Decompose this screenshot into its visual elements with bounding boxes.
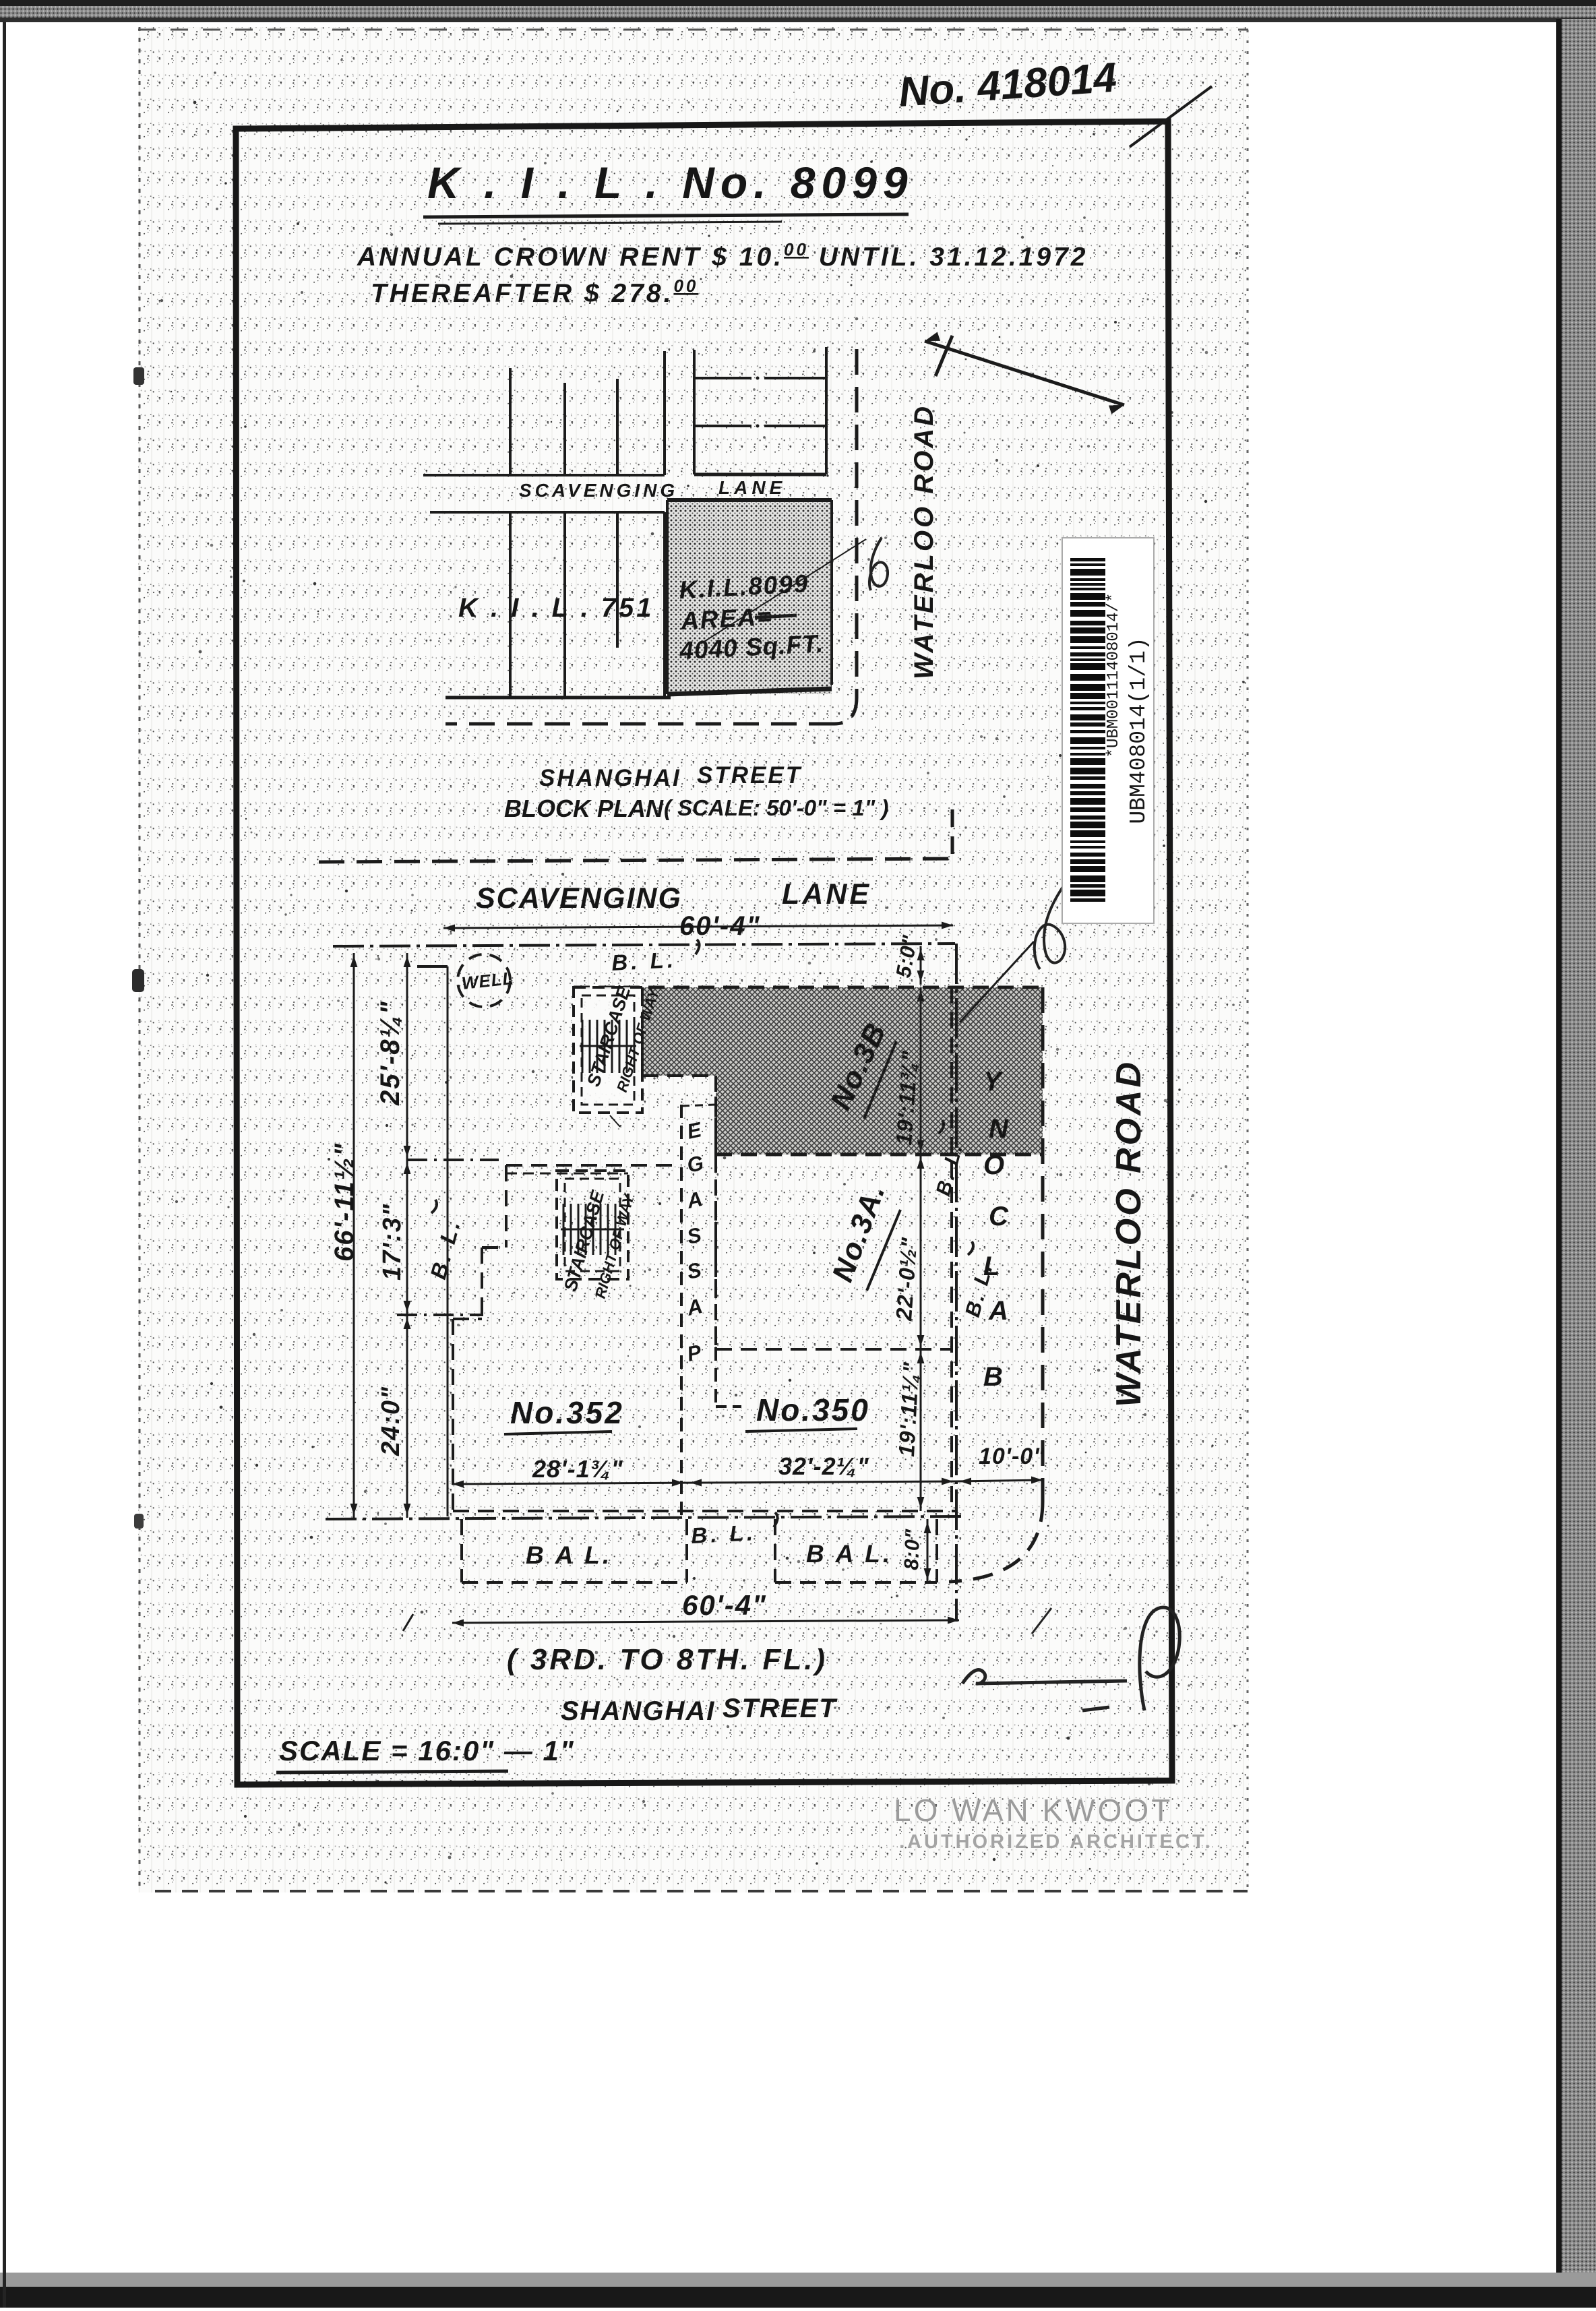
svg-text:UBM408014(1/1): UBM408014(1/1) (1126, 637, 1151, 824)
svg-text:C: C (989, 1202, 1009, 1231)
svg-text:STREET: STREET (697, 762, 802, 789)
svg-text:WATERLOO ROAD: WATERLOO ROAD (1109, 1059, 1148, 1407)
svg-text:O: O (983, 1150, 1004, 1180)
svg-text:WATERLOO ROAD: WATERLOO ROAD (909, 404, 939, 679)
svg-text:K . I . L . No. 8099: K . I . L . No. 8099 (427, 158, 914, 208)
svg-text:No.350: No.350 (756, 1392, 870, 1427)
svg-text:60'-4": 60'-4" (679, 911, 761, 941)
svg-text:ANNUAL CROWN RENT $ 10.00 UNTI: ANNUAL CROWN RENT $ 10.00 UNTIL. 31.12.1… (357, 239, 1088, 272)
svg-text:B. L.: B. L. (690, 1520, 756, 1548)
svg-text:*UBM00111408014/*: *UBM00111408014/* (1105, 593, 1123, 758)
svg-text:( 3RD. TO 8TH. FL.): ( 3RD. TO 8TH. FL.) (507, 1643, 828, 1676)
svg-text:B: B (983, 1362, 1003, 1392)
svg-text:SCALE = 16:0" — 1": SCALE = 16:0" — 1" (279, 1735, 575, 1766)
svg-text:B A L.: B A L. (526, 1541, 612, 1569)
svg-text:60'-4": 60'-4" (682, 1589, 767, 1621)
svg-text:SHANGHAI: SHANGHAI (561, 1696, 715, 1726)
svg-text:24:0": 24:0" (377, 1386, 405, 1456)
svg-text:SCAVENGING: SCAVENGING (476, 882, 682, 915)
svg-text:Y: Y (983, 1067, 1004, 1097)
svg-text:K . I . L . 751: K . I . L . 751 (458, 593, 654, 623)
svg-text:LANE: LANE (718, 477, 786, 498)
svg-text:19':11¼": 19':11¼" (894, 1361, 923, 1458)
svg-text:THEREAFTER $ 278.00: THEREAFTER $ 278.00 (371, 276, 698, 308)
svg-text:A: A (988, 1296, 1008, 1326)
svg-text:8:0": 8:0" (900, 1529, 924, 1571)
svg-text:28'-1¾": 28'-1¾" (532, 1455, 623, 1483)
svg-text:LANE: LANE (782, 878, 871, 911)
svg-text:B A L.: B A L. (806, 1540, 892, 1568)
svg-text:( SCALE: 50'-0" = 1" ): ( SCALE: 50'-0" = 1" ) (664, 795, 888, 820)
svg-text:STREET: STREET (723, 1694, 838, 1723)
svg-text:32'-2¼": 32'-2¼" (778, 1452, 869, 1480)
svg-text:25'-8¼": 25'-8¼" (375, 1000, 405, 1106)
svg-text:10'-0": 10'-0" (979, 1444, 1045, 1469)
svg-text:.AUTHORIZED ARCHITECT.: .AUTHORIZED ARCHITECT. (899, 1831, 1213, 1853)
svg-text:SCAVENGING: SCAVENGING (519, 480, 678, 501)
svg-text:SHANGHAI: SHANGHAI (539, 765, 681, 791)
svg-text:No.352: No.352 (510, 1395, 624, 1430)
svg-text:66'-11½": 66'-11½" (330, 1142, 359, 1262)
svg-text:B. L.: B. L. (611, 947, 677, 975)
svg-text:BLOCK PLAN: BLOCK PLAN (504, 795, 664, 822)
svg-text:LO WAN KWOOT: LO WAN KWOOT (894, 1793, 1173, 1828)
svg-text:17':3": 17':3" (378, 1203, 406, 1281)
svg-text:N: N (989, 1114, 1009, 1144)
